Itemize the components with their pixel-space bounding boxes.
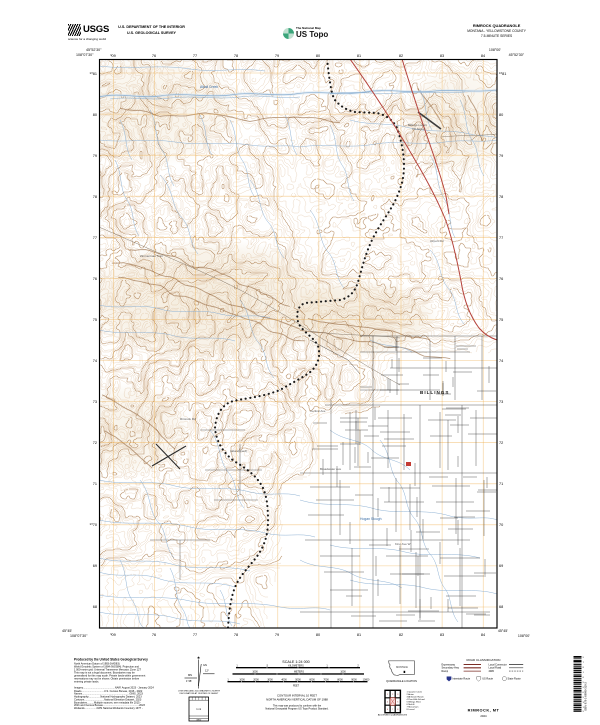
svg-text:2024: 2024 — [480, 714, 487, 718]
svg-text:74: 74 — [93, 359, 97, 363]
svg-text:2000: 2000 — [253, 678, 259, 681]
svg-text:3: 3 — [397, 694, 399, 696]
svg-text:76: 76 — [499, 277, 503, 281]
svg-text:KILOMETERS: KILOMETERS — [288, 664, 304, 667]
svg-text:ROAD CLASSIFICATION: ROAD CLASSIFICATION — [467, 658, 501, 662]
svg-text:1000: 1000 — [252, 671, 258, 674]
svg-text:MN: MN — [188, 673, 192, 677]
svg-text:84: 84 — [481, 54, 485, 58]
svg-text:7: 7 — [392, 709, 394, 711]
svg-text:8 Laurel: 8 Laurel — [407, 708, 415, 711]
svg-text:GN: GN — [203, 663, 207, 667]
svg-text:Intl Airport: Intl Airport — [412, 127, 426, 131]
svg-text:83: 83 — [440, 54, 444, 58]
svg-text:78: 78 — [234, 633, 238, 637]
svg-text:6000: 6000 — [309, 678, 315, 681]
svg-text:1: 1 — [387, 694, 389, 696]
svg-text:Central Ave: Central Ave — [310, 409, 326, 413]
svg-text:81: 81 — [357, 633, 361, 637]
svg-text:71: 71 — [93, 482, 97, 486]
svg-text:Interstate Route: Interstate Route — [452, 678, 470, 681]
svg-text:BILLINGS: BILLINGS — [420, 390, 449, 395]
svg-text:6: 6 — [583, 677, 585, 679]
svg-text:10000: 10000 — [363, 678, 370, 681]
svg-text:Alkali Creek: Alkali Creek — [200, 85, 218, 89]
svg-text:81: 81 — [357, 54, 361, 58]
svg-text:79: 79 — [275, 633, 279, 637]
svg-text:4: 4 — [387, 701, 389, 703]
svg-text:Broadwater Ave: Broadwater Ave — [320, 467, 341, 471]
svg-text:78: 78 — [499, 195, 503, 199]
svg-text:1: 1 — [326, 664, 328, 667]
svg-text:75: 75 — [499, 318, 503, 322]
svg-text:12°: 12° — [205, 669, 209, 673]
svg-text:³09: ³09 — [110, 54, 116, 58]
svg-text:⁵⁰81: ⁵⁰81 — [90, 72, 97, 76]
svg-text:6: 6 — [387, 709, 389, 711]
svg-text:2: 2 — [357, 664, 359, 667]
svg-text:³09: ³09 — [110, 633, 116, 637]
svg-text:1 mi: 1 mi — [196, 707, 201, 711]
svg-text:1000: 1000 — [239, 678, 245, 681]
svg-text:National Geospatial Program US: National Geospatial Program US Topo Prod… — [265, 708, 328, 711]
svg-text:71: 71 — [499, 482, 503, 486]
svg-text:80: 80 — [499, 113, 503, 117]
svg-text:79: 79 — [93, 154, 97, 158]
svg-text:NORTH AMERICAN VERTICAL DATUM: NORTH AMERICAN VERTICAL DATUM OF 1988 — [266, 697, 328, 701]
svg-text:7: 7 — [583, 662, 585, 664]
svg-text:68: 68 — [93, 605, 97, 609]
svg-text:.5: .5 — [266, 664, 269, 667]
svg-text:69: 69 — [499, 564, 503, 568]
svg-text:1: 1 — [227, 678, 229, 681]
svg-text:79: 79 — [275, 54, 279, 58]
svg-text:78: 78 — [234, 54, 238, 58]
svg-text:77: 77 — [193, 54, 197, 58]
svg-text:80: 80 — [316, 633, 320, 637]
svg-text:5000: 5000 — [295, 678, 301, 681]
svg-text:79: 79 — [499, 154, 503, 158]
svg-text:US Route: US Route — [482, 678, 493, 681]
svg-text:80: 80 — [93, 113, 97, 117]
svg-text:69: 69 — [93, 564, 97, 568]
svg-text:FEET: FEET — [293, 685, 300, 688]
svg-text:QUADRANGLE LOCATION: QUADRANGLE LOCATION — [386, 680, 417, 683]
svg-text:RIMROCK, MT: RIMROCK, MT — [468, 708, 500, 713]
svg-text:78: 78 — [93, 195, 97, 199]
svg-text:83: 83 — [440, 633, 444, 637]
svg-text:ISBN 978-1-69990-319-2: ISBN 978-1-69990-319-2 — [584, 681, 588, 711]
svg-text:76: 76 — [152, 54, 156, 58]
svg-text:9: 9 — [583, 657, 585, 659]
svg-text:GRID: GRID — [196, 720, 202, 722]
svg-text:1°48´: 1°48´ — [186, 679, 192, 683]
svg-text:77: 77 — [193, 633, 197, 637]
svg-text:Hogan Slough: Hogan Slough — [360, 517, 382, 521]
svg-text:73: 73 — [499, 400, 503, 404]
svg-text:⁵⁰70: ⁵⁰70 — [90, 523, 97, 527]
svg-text:State Route: State Route — [508, 678, 522, 681]
svg-text:(abandoned): (abandoned) — [230, 449, 247, 453]
svg-text:5: 5 — [397, 701, 399, 703]
svg-text:84: 84 — [481, 633, 485, 637]
svg-text:4WD: 4WD — [489, 670, 495, 673]
svg-text:DECLINATION AT CENTER OF SHEET: DECLINATION AT CENTER OF SHEET — [180, 692, 219, 695]
svg-text:UTM GRID AND 2024 MAGNETIC NOR: UTM GRID AND 2024 MAGNETIC NORTH — [178, 689, 220, 692]
svg-text:METERS: METERS — [294, 671, 304, 674]
svg-text:4000: 4000 — [281, 678, 287, 681]
svg-text:76: 76 — [93, 277, 97, 281]
svg-text:72: 72 — [499, 441, 503, 445]
svg-text:82: 82 — [399, 633, 403, 637]
svg-text:9000: 9000 — [351, 678, 357, 681]
svg-text:7000: 7000 — [323, 678, 329, 681]
svg-text:entering private lands.: entering private lands. — [74, 680, 99, 684]
svg-text:2: 2 — [392, 694, 394, 696]
svg-text:8000: 8000 — [337, 678, 343, 681]
svg-text:82: 82 — [399, 54, 403, 58]
svg-text:★: ★ — [197, 655, 201, 660]
svg-text:Airport Rd: Airport Rd — [430, 239, 444, 243]
svg-text:3000: 3000 — [267, 678, 273, 681]
svg-text:74: 74 — [499, 359, 503, 363]
svg-text:68: 68 — [499, 605, 503, 609]
svg-text:Wetlands.................FWS N: Wetlands.................FWS National We… — [74, 706, 143, 710]
svg-text:8: 8 — [583, 667, 585, 669]
svg-text:Rimrock Rd: Rimrock Rd — [180, 417, 196, 421]
svg-text:80: 80 — [316, 54, 320, 58]
svg-text:⁵⁰81: ⁵⁰81 — [499, 72, 506, 76]
svg-text:MONTANA: MONTANA — [396, 666, 408, 669]
svg-text:72: 72 — [93, 441, 97, 445]
svg-text:73: 73 — [93, 400, 97, 404]
svg-text:76: 76 — [152, 633, 156, 637]
svg-text:8: 8 — [397, 709, 399, 711]
svg-text:Zimmerman Trail: Zimmerman Trail — [140, 254, 163, 258]
svg-text:Ramp: Ramp — [442, 670, 449, 673]
svg-text:1: 1 — [583, 672, 585, 674]
svg-text:1000: 1000 — [340, 671, 346, 674]
svg-text:Produced by the United States: Produced by the United States Geological… — [74, 658, 148, 662]
svg-text:77: 77 — [93, 236, 97, 240]
svg-text:77: 77 — [499, 236, 503, 240]
svg-text:70: 70 — [499, 523, 503, 527]
svg-text:ADJOINING QUADRANGLES: ADJOINING QUADRANGLES — [378, 714, 408, 717]
svg-text:King Ave W: King Ave W — [395, 542, 411, 546]
svg-text:1: 1 — [236, 664, 238, 667]
svg-text:75: 75 — [93, 318, 97, 322]
